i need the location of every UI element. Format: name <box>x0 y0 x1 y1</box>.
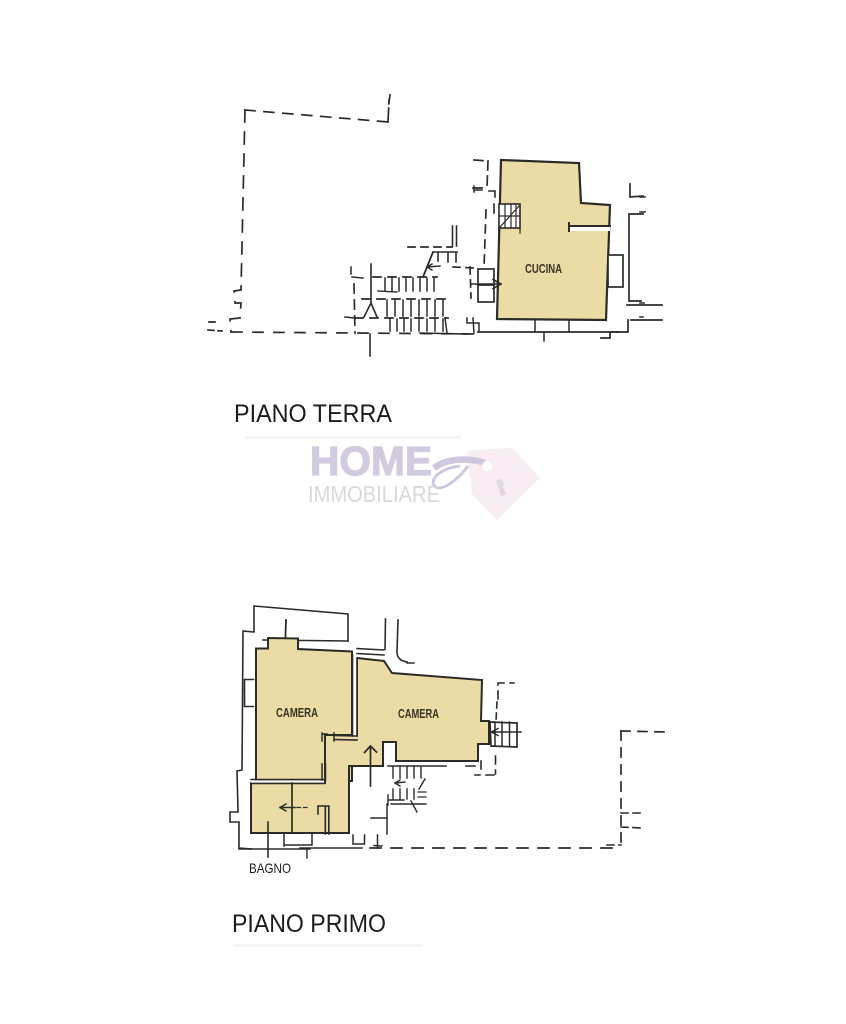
svg-text:IMMOBILIARE: IMMOBILIARE <box>308 481 440 507</box>
svg-text:HOME: HOME <box>310 438 432 484</box>
svg-text:BAGNO: BAGNO <box>249 860 291 876</box>
svg-text:CUCINA: CUCINA <box>525 262 562 276</box>
svg-text:PIANO PRIMO: PIANO PRIMO <box>232 910 386 938</box>
svg-text:PIANO TERRA: PIANO TERRA <box>234 400 392 428</box>
svg-text:CAMERA: CAMERA <box>276 705 318 720</box>
svg-text:CAMERA: CAMERA <box>398 706 439 721</box>
